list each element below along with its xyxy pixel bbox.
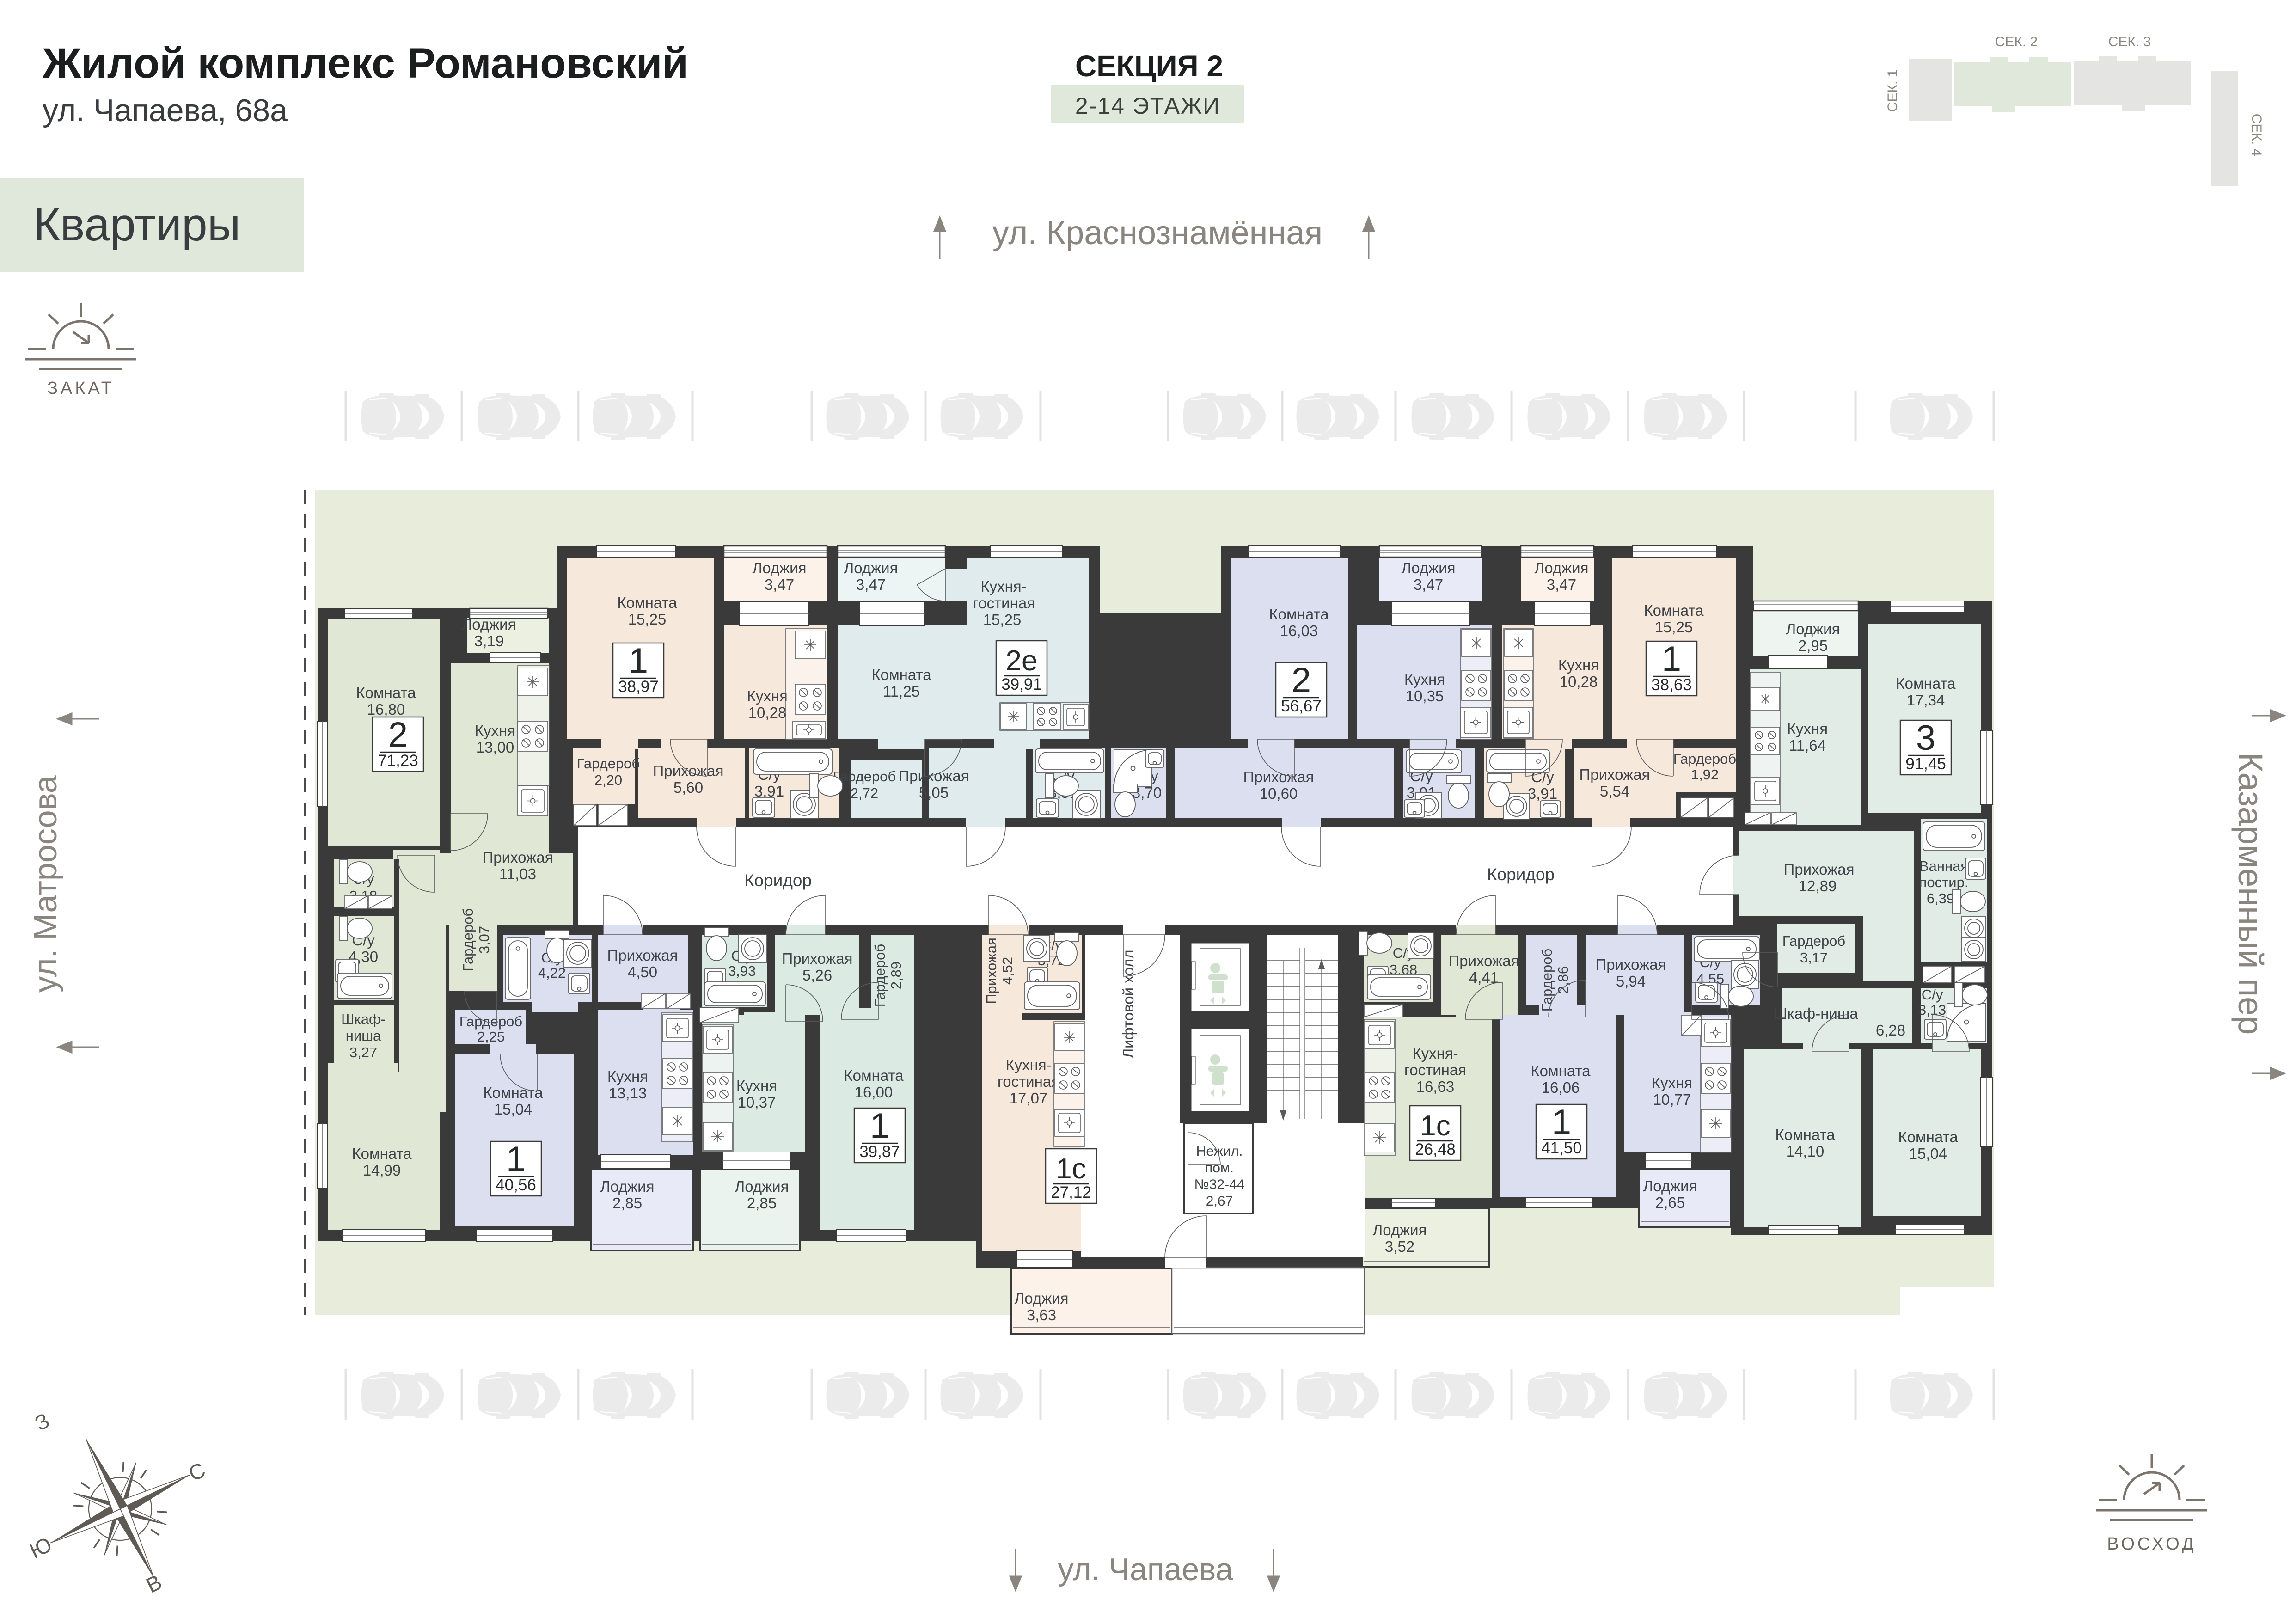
svg-text:Прихожая: Прихожая [1580, 766, 1650, 783]
svg-text:Комната: Комната [1269, 606, 1329, 623]
svg-text:СЕК. 3: СЕК. 3 [2108, 34, 2151, 49]
svg-text:Прихожая: Прихожая [607, 947, 678, 964]
svg-text:41,50: 41,50 [1541, 1139, 1582, 1157]
svg-text:10,35: 10,35 [1406, 687, 1444, 705]
svg-text:2: 2 [1292, 661, 1311, 700]
svg-text:З: З [31, 1408, 53, 1435]
svg-text:ул. Чапаева, 68а: ул. Чапаева, 68а [43, 93, 288, 128]
svg-text:10,60: 10,60 [1260, 785, 1298, 802]
svg-text:СЕК. 2: СЕК. 2 [1995, 34, 2038, 49]
svg-text:ниша: ниша [346, 1028, 381, 1044]
svg-text:2е: 2е [1006, 645, 1038, 677]
svg-text:Кухня: Кухня [1787, 720, 1828, 737]
svg-text:Прихожая: Прихожая [899, 767, 969, 784]
svg-text:Шкаф-ниша: Шкаф-ниша [1773, 1005, 1858, 1022]
svg-text:16,06: 16,06 [1542, 1079, 1580, 1096]
svg-text:3,47: 3,47 [1547, 576, 1576, 593]
svg-text:2,85: 2,85 [747, 1195, 777, 1212]
svg-text:16,03: 16,03 [1280, 622, 1318, 639]
svg-text:2,25: 2,25 [477, 1029, 505, 1045]
svg-text:Комната: Комната [1644, 602, 1704, 619]
svg-text:5,94: 5,94 [1616, 973, 1646, 990]
svg-text:Комната: Комната [483, 1084, 543, 1101]
svg-text:3,47: 3,47 [1414, 576, 1443, 593]
svg-text:Кухня: Кухня [747, 687, 788, 705]
svg-text:3,52: 3,52 [1385, 1238, 1414, 1255]
svg-text:Лоджия: Лоджия [1373, 1221, 1427, 1238]
svg-text:Прихожая: Прихожая [1449, 952, 1519, 969]
svg-text:5,26: 5,26 [802, 967, 832, 984]
svg-text:Лоджия: Лоджия [1015, 1290, 1069, 1307]
svg-text:1: 1 [1552, 1103, 1571, 1142]
svg-text:17,07: 17,07 [1010, 1090, 1048, 1107]
svg-text:11,25: 11,25 [883, 683, 920, 700]
svg-text:2: 2 [388, 715, 408, 754]
svg-text:Комната: Комната [871, 666, 931, 683]
svg-text:6,28: 6,28 [1876, 1022, 1905, 1039]
svg-text:постир.: постир. [1919, 874, 1969, 890]
svg-text:27,12: 27,12 [1051, 1183, 1091, 1201]
svg-text:4,22: 4,22 [538, 965, 566, 981]
svg-text:1: 1 [870, 1106, 889, 1146]
svg-text:13,13: 13,13 [609, 1085, 647, 1102]
svg-text:Лоджия: Лоджия [600, 1178, 655, 1195]
svg-text:Прихожая: Прихожая [483, 849, 553, 866]
svg-text:17,34: 17,34 [1907, 692, 1945, 709]
svg-text:Комната: Комната [1898, 1128, 1958, 1146]
svg-text:Кухня: Кухня [607, 1068, 648, 1085]
svg-text:91,45: 91,45 [1905, 755, 1946, 773]
svg-text:С/у: С/у [1922, 987, 1943, 1003]
svg-text:11,64: 11,64 [1789, 737, 1826, 754]
svg-text:Кухня: Кухня [736, 1077, 777, 1094]
svg-text:Комната: Комната [356, 684, 416, 701]
svg-text:Жилой комплекс Романовский: Жилой комплекс Романовский [42, 40, 688, 87]
svg-text:11,03: 11,03 [499, 865, 536, 882]
svg-text:4,50: 4,50 [628, 963, 657, 981]
svg-text:Казарменный пер: Казарменный пер [2231, 753, 2270, 1035]
svg-text:пом.: пом. [1205, 1160, 1234, 1176]
svg-text:Кухня-: Кухня- [980, 578, 1026, 595]
svg-text:71,23: 71,23 [378, 752, 418, 770]
svg-text:1с: 1с [1056, 1153, 1086, 1185]
svg-text:ВОСХОД: ВОСХОД [2107, 1534, 2197, 1554]
svg-text:Прихожая: Прихожая [1243, 768, 1314, 785]
svg-text:ул. Краснознамённая: ул. Краснознамённая [992, 214, 1322, 251]
svg-text:10,37: 10,37 [738, 1094, 776, 1111]
svg-text:3,93: 3,93 [728, 963, 756, 979]
svg-text:СЕК. 4: СЕК. 4 [2249, 114, 2264, 157]
svg-text:Комната: Комната [844, 1067, 904, 1084]
svg-text:ЗАКАТ: ЗАКАТ [47, 379, 115, 398]
svg-text:2,72: 2,72 [851, 785, 878, 801]
svg-text:гостиная: гостиная [973, 594, 1035, 612]
svg-text:СЕК. 1: СЕК. 1 [1885, 69, 1900, 112]
svg-text:16,63: 16,63 [1416, 1078, 1455, 1095]
svg-text:Гардероб: Гардероб [1673, 751, 1736, 767]
svg-text:15,25: 15,25 [1655, 619, 1693, 636]
svg-text:Гардероб: Гардероб [460, 908, 476, 971]
svg-text:38,63: 38,63 [1651, 676, 1692, 694]
svg-text:16,00: 16,00 [855, 1084, 893, 1101]
svg-text:15,25: 15,25 [628, 611, 667, 628]
svg-text:5,60: 5,60 [673, 779, 703, 796]
svg-text:10,28: 10,28 [748, 704, 787, 721]
svg-text:2,89: 2,89 [888, 962, 904, 989]
svg-text:2,20: 2,20 [594, 772, 622, 788]
svg-text:№32-44: №32-44 [1194, 1177, 1245, 1192]
svg-text:Гардероб: Гардероб [1782, 933, 1845, 949]
svg-text:Прихожая: Прихожая [1784, 861, 1855, 878]
svg-text:Кухня: Кухня [1558, 656, 1599, 674]
svg-text:ул. Чапаева: ул. Чапаева [1058, 1552, 1233, 1587]
svg-text:гостиная: гостиная [998, 1073, 1059, 1090]
svg-text:Кухня-: Кухня- [1412, 1045, 1458, 1062]
svg-text:Ванная: Ванная [1919, 858, 1968, 874]
svg-text:Лифтовой холл: Лифтовой холл [1120, 950, 1137, 1059]
svg-text:Комната: Комната [1896, 675, 1956, 692]
svg-text:Прихожая: Прихожая [1596, 956, 1666, 973]
svg-text:38,97: 38,97 [618, 678, 659, 696]
svg-text:2-14 ЭТАЖИ: 2-14 ЭТАЖИ [1075, 93, 1220, 119]
svg-text:Квартиры: Квартиры [33, 199, 240, 251]
svg-text:3,17: 3,17 [1800, 950, 1828, 966]
svg-text:Лоджия: Лоджия [844, 559, 898, 576]
svg-text:Коридор: Коридор [1487, 865, 1555, 884]
svg-text:Кухня: Кухня [1404, 671, 1445, 688]
svg-text:5,05: 5,05 [919, 784, 949, 801]
svg-text:5,54: 5,54 [1600, 783, 1629, 800]
svg-text:Гардероб: Гардероб [577, 755, 640, 772]
svg-text:3,47: 3,47 [856, 576, 886, 593]
svg-text:Гардероб: Гардероб [872, 944, 888, 1007]
svg-text:4,52: 4,52 [999, 957, 1016, 985]
svg-text:С: С [185, 1458, 209, 1486]
svg-text:1: 1 [629, 641, 648, 680]
svg-text:15,04: 15,04 [1909, 1145, 1947, 1162]
svg-text:ул. Матросова: ул. Матросова [27, 775, 63, 993]
svg-text:3: 3 [1916, 718, 1935, 758]
svg-text:10,28: 10,28 [1560, 673, 1598, 690]
svg-text:3,07: 3,07 [476, 926, 492, 954]
svg-text:2,95: 2,95 [1798, 637, 1828, 654]
svg-text:14,99: 14,99 [363, 1162, 401, 1179]
svg-text:3,47: 3,47 [765, 576, 794, 593]
svg-text:Кухня-: Кухня- [1005, 1056, 1051, 1073]
svg-text:3,27: 3,27 [349, 1044, 377, 1060]
svg-text:3,63: 3,63 [1027, 1306, 1056, 1324]
svg-text:14,10: 14,10 [1786, 1143, 1825, 1160]
svg-text:15,25: 15,25 [983, 611, 1022, 628]
svg-text:Кухня: Кухня [1652, 1074, 1692, 1091]
svg-text:Лоджия: Лоджия [753, 559, 807, 576]
svg-text:Прихожая: Прихожая [782, 950, 853, 967]
svg-text:1,92: 1,92 [1691, 766, 1719, 783]
svg-text:13,00: 13,00 [476, 739, 514, 756]
svg-text:40,56: 40,56 [496, 1176, 536, 1194]
svg-text:Лоджия: Лоджия [735, 1178, 789, 1195]
svg-text:2,67: 2,67 [1206, 1194, 1233, 1209]
svg-text:3,91: 3,91 [1528, 785, 1557, 802]
svg-text:Гардероб: Гардероб [833, 768, 896, 784]
svg-text:Кухня: Кухня [475, 722, 515, 739]
svg-text:1с: 1с [1420, 1110, 1450, 1142]
svg-text:56,67: 56,67 [1281, 697, 1322, 715]
svg-text:2,86: 2,86 [1555, 966, 1571, 994]
svg-text:В: В [142, 1570, 165, 1598]
svg-text:2,65: 2,65 [1655, 1194, 1685, 1211]
svg-text:1: 1 [506, 1140, 526, 1179]
svg-text:15,04: 15,04 [494, 1101, 533, 1118]
svg-text:Комната: Комната [617, 594, 677, 611]
svg-text:39,87: 39,87 [859, 1143, 900, 1161]
svg-text:10,77: 10,77 [1653, 1091, 1691, 1108]
svg-text:39,91: 39,91 [1001, 675, 1042, 693]
svg-text:12,89: 12,89 [1799, 877, 1837, 895]
svg-text:Комната: Комната [352, 1145, 412, 1162]
svg-text:Ю: Ю [26, 1532, 56, 1563]
svg-text:Комната: Комната [1775, 1126, 1835, 1143]
svg-text:Лоджия: Лоджия [462, 616, 516, 633]
svg-text:Гардероб: Гардероб [459, 1013, 522, 1030]
svg-text:Коридор: Коридор [744, 871, 812, 890]
svg-text:СЕКЦИЯ 2: СЕКЦИЯ 2 [1075, 49, 1223, 83]
svg-text:Лоджия: Лоджия [1786, 620, 1840, 637]
svg-text:Лоджия: Лоджия [1535, 559, 1589, 576]
svg-text:1: 1 [1662, 639, 1681, 679]
svg-text:Гардероб: Гардероб [1539, 949, 1555, 1011]
svg-text:3,19: 3,19 [474, 632, 504, 650]
svg-text:Лоджия: Лоджия [1402, 559, 1456, 576]
svg-text:Прихожая: Прихожая [983, 938, 999, 1004]
svg-text:Шкаф-: Шкаф- [341, 1011, 386, 1027]
svg-text:Лоджия: Лоджия [1643, 1177, 1697, 1195]
svg-text:26,48: 26,48 [1415, 1140, 1456, 1158]
svg-text:гостиная: гостиная [1404, 1061, 1466, 1079]
svg-text:Комната: Комната [1531, 1062, 1591, 1079]
svg-text:2,85: 2,85 [612, 1195, 642, 1212]
svg-text:6,39: 6,39 [1927, 890, 1954, 907]
